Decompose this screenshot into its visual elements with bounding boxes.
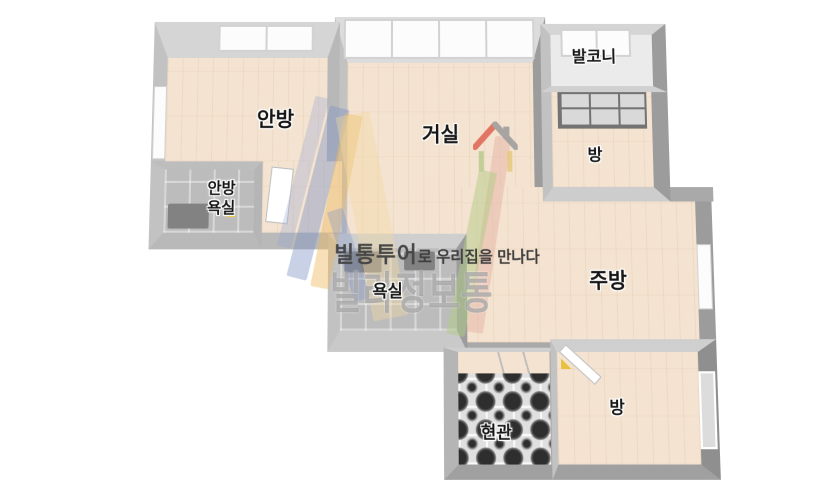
- room-label-anbang-yoksil-line1: 안방: [207, 179, 236, 199]
- window-mullion: [485, 21, 487, 57]
- shoe-closet: [458, 352, 550, 373]
- room-label-geosil: 거실: [422, 118, 459, 148]
- bedroom-north-window: [218, 25, 314, 52]
- room-label-hyeongwan: 현관: [481, 418, 512, 444]
- balcony-grid-window: [557, 92, 647, 129]
- bathroom-sink: [344, 251, 381, 272]
- wall-segment: [670, 187, 713, 201]
- room-label-anbang-yoksil-line2: 욕실: [207, 198, 236, 218]
- floor-plan: 빌통투어로 우리집을 만나다 빌라정보통 안방 거실 발코니 방 안방 욕실 욕…: [126, 12, 737, 489]
- bedroom-west-window: [152, 86, 167, 159]
- bedroom-east-window: [698, 371, 717, 449]
- bathroom-vanity: [167, 204, 208, 229]
- room-label-yoksil: 욕실: [372, 277, 402, 302]
- kitchen-east-window: [696, 244, 713, 309]
- floor-plan-canvas: 빌통투어로 우리집을 만나다 빌라정보통 안방 거실 발코니 방 안방 욕실 욕…: [0, 0, 840, 472]
- room-anbang-yoksil: [148, 161, 262, 249]
- room-bang-top: [541, 92, 670, 201]
- toilet: [404, 251, 435, 270]
- door: [265, 166, 294, 224]
- room-label-bang-top: 방: [587, 141, 602, 166]
- room-label-anbang: 안방: [257, 103, 295, 132]
- room-label-balkoni: 발코니: [571, 43, 616, 67]
- room-label-bang-bottom: 방: [609, 393, 625, 419]
- living-room-window: [344, 19, 535, 59]
- room-label-anbang-yoksil: 안방 욕실: [207, 179, 236, 218]
- room-label-jubang: 주방: [589, 264, 628, 295]
- window-mullion: [265, 27, 267, 50]
- room-bang-bottom: [550, 339, 721, 480]
- window-mullion: [391, 21, 393, 57]
- room-anbang: [151, 22, 340, 174]
- window-mullion: [438, 21, 440, 57]
- room-hyeongwan: [444, 348, 558, 480]
